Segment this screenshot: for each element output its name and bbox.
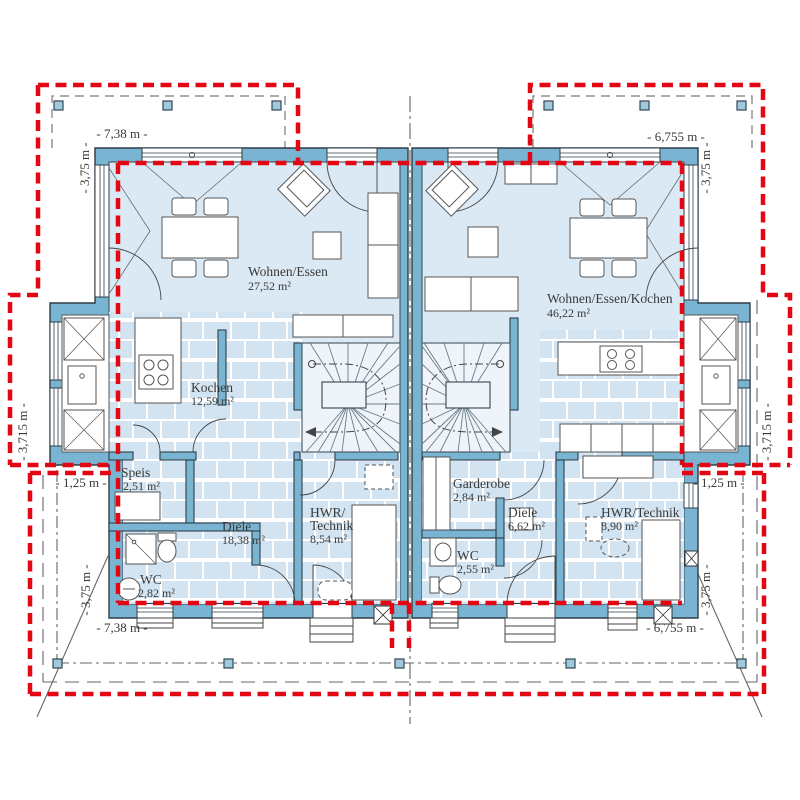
room-area-wc-right: 2,55 m² [457,562,494,576]
room-area-hwr-right: 8,90 m² [601,519,638,533]
dim-left-bay: - 1,25 m - [55,475,106,490]
dim-right-mid: - 3,715 m - [759,403,774,461]
room-area-wohnen-left: 27,52 m² [248,279,291,293]
room-label-wc-left: WC [140,572,162,587]
room-label-diele-right: Diele [508,505,537,520]
dim-bottom-right: - 6,755 m - [646,620,704,635]
room-area-diele-right: 6,62 m² [508,519,545,533]
floor-plan-page: - 7,38 m - - 6,755 m - - 7,38 m - - 6,75… [0,0,800,800]
dim-left-upper: - 3,75 m - [77,142,92,193]
room-area-wc-left: 2,82 m² [138,586,175,600]
room-label-speis: Speis [121,465,150,480]
room-label-hwr-left-2: Technik [310,518,354,533]
room-area-hwr-left: 8,54 m² [310,532,347,546]
room-label-hwr-right: HWR/Technik [601,505,680,520]
room-label-diele-left: Diele [222,519,251,534]
room-label-wohnen-left: Wohnen/Essen [248,264,328,279]
room-label-kochen: Kochen [191,380,233,395]
room-area-speis: 2,51 m² [123,479,160,493]
dim-left-lower: - 3,75 m - [78,564,93,615]
dim-bottom-left: - 7,38 m - [96,620,147,635]
dim-left-mid: - 3,715 m - [15,403,30,461]
terrace-top-left-posts [54,101,281,110]
terrace-top-right-posts [544,101,746,110]
dim-top-left: - 7,38 m - [96,126,147,141]
dim-right-bay: - 1,25 m - [693,475,744,490]
room-label-wohnen-right: Wohnen/Essen/Kochen [547,291,673,306]
floor-plan-canvas: - 7,38 m - - 6,755 m - - 7,38 m - - 6,75… [0,0,800,800]
room-area-garderobe: 2,84 m² [453,490,490,504]
dim-right-upper: - 3,75 m - [698,142,713,193]
stairs-right [422,343,510,452]
dim-right-lower: - 3,75 m - [698,564,713,615]
room-label-garderobe: Garderobe [453,476,510,491]
dim-top-right: - 6,755 m - [647,129,705,144]
room-area-diele-left: 18,38 m² [222,533,265,547]
stairs-left [302,343,400,452]
room-label-wc-right: WC [457,548,479,563]
room-area-wohnen-right: 46,22 m² [547,306,590,320]
room-area-kochen: 12,59 m² [191,394,234,408]
